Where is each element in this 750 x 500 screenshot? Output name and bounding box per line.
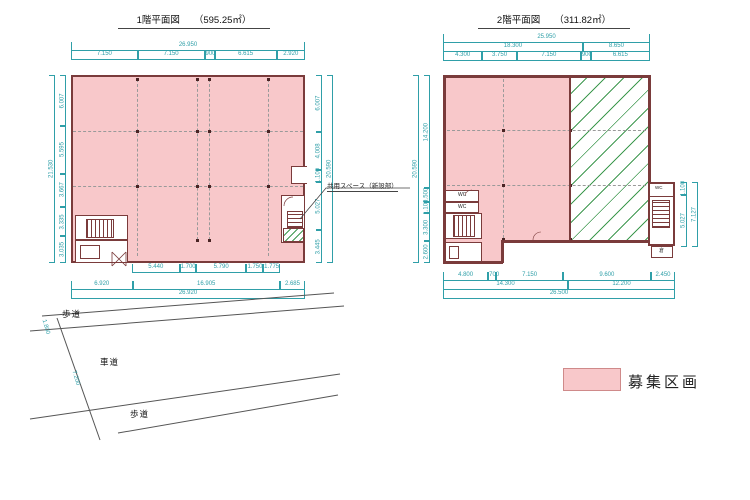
road-label-mid: 車道 — [100, 356, 119, 368]
dim-label: 3.667 — [60, 175, 65, 205]
dim-segment: 6.615 — [215, 51, 277, 60]
dim-segment: 14.300 — [443, 281, 568, 290]
dim-label: 4.008 — [316, 133, 321, 169]
dim-label: 900 — [582, 52, 590, 58]
floor1-wall-notch — [291, 166, 307, 184]
dim-label: 6.007 — [60, 76, 65, 125]
dim-label: 4.300 — [444, 52, 481, 58]
column-marker — [502, 129, 505, 132]
road-label-top: 歩道 — [62, 308, 81, 320]
dim-label: 1.100 — [681, 183, 686, 194]
dim-col-floor2-right-total: 7.127 — [692, 182, 701, 247]
dim-label: 2.685 — [281, 281, 304, 287]
dim-label: 9.600 — [564, 272, 650, 278]
dim-segment: 1.100 — [424, 202, 430, 213]
dim-row-floor1-top: 7.1507.1509006.6152.920 — [71, 51, 305, 60]
dim-segment: 4.008 — [316, 132, 322, 170]
dim-label: 5.595 — [60, 127, 65, 173]
dim-segment: 7.150 — [517, 52, 581, 61]
dim-label: 12.200 — [569, 281, 674, 287]
dim-label: 7.127 — [692, 183, 697, 246]
dim-label: 1.100 — [316, 171, 321, 181]
dim-segment: 1.100 — [316, 170, 322, 182]
dim-segment: 12.200 — [568, 281, 675, 290]
dim-segment: 21.530 — [49, 75, 55, 263]
dim-row-floor1-top-total: 26.950 — [71, 42, 305, 51]
dim-segment: 16.905 — [133, 281, 280, 290]
dim-segment: 7.150 — [71, 51, 138, 60]
floor-plan-drawing: 1階平面図（595.25㎡） 2階平面図（311.82㎡） 26.950 7.1… — [0, 0, 750, 500]
road-line — [118, 395, 338, 433]
site-dim: 1.800 — [41, 319, 51, 335]
dim-segment: 1.750 — [246, 264, 263, 273]
dim-label: 26.920 — [72, 290, 304, 296]
legend-label: 募集区画 — [628, 371, 700, 392]
dim-label: 7.150 — [72, 51, 137, 57]
dim-segment: 3.445 — [316, 230, 322, 263]
dim-label: 26.500 — [444, 290, 674, 296]
dim-segment: 7.150 — [138, 51, 205, 60]
dim-segment: 900 — [205, 51, 215, 60]
floor2-fixture — [449, 246, 459, 259]
dim-label: 1.775 — [264, 264, 279, 270]
floor2-annex-stairs — [652, 200, 670, 228]
site-dim: 7.200 — [71, 370, 81, 386]
floor2-title: 2階平面図（311.82㎡） — [478, 12, 630, 29]
wc-label: WC — [458, 193, 466, 198]
dim-segment: 3.667 — [60, 174, 66, 206]
dim-label: 7.150 — [139, 51, 204, 57]
dim-segment: 3.335 — [60, 207, 66, 236]
dim-label: 1.750 — [247, 264, 262, 270]
dim-row-floor2-top: 4.3003.7507.1509006.615 — [443, 52, 650, 61]
wc-label: WC — [655, 186, 663, 191]
floor1-left-stairs — [86, 219, 114, 238]
grid-line — [447, 185, 646, 186]
dim-row-floor1-bottom: 6.92016.9052.685 — [71, 281, 305, 290]
dim-label: 700 — [489, 272, 495, 278]
floor2-wall-top — [443, 75, 650, 78]
dim-segment: 5.027 — [316, 182, 322, 230]
dim-segment: 7.150 — [496, 272, 562, 281]
dim-col-floor1-right: 6.0074.0081.1005.0273.445 — [316, 75, 325, 263]
dim-segment: 26.500 — [443, 290, 675, 299]
dim-col-floor2-left-total: 20.590 — [413, 75, 422, 263]
dim-label: 18.300 — [444, 43, 582, 49]
dim-row-floor1-bottom-total: 26.920 — [71, 290, 305, 299]
shared-space-label: 共用スペース（新設部） — [327, 180, 398, 192]
dim-col-floor1-left-total: 21.530 — [49, 75, 58, 263]
dim-label: 6.615 — [592, 52, 649, 58]
dim-col-floor1-right-total: 20.590 — [327, 75, 336, 263]
floor2-wall-bottom — [501, 240, 650, 243]
dim-segment: 6.007 — [60, 75, 66, 126]
dim-label: 7.150 — [518, 52, 580, 58]
legend-swatch — [563, 368, 621, 391]
dim-row-floor2-top-total: 25.950 — [443, 34, 650, 43]
dim-segment: 1.775 — [263, 264, 280, 273]
dim-segment: 26.950 — [71, 42, 305, 51]
dim-segment: 4.300 — [443, 52, 482, 61]
dim-segment: 2.685 — [280, 281, 305, 290]
dim-row-floor2-top-mid: 18.3008.650 — [443, 43, 650, 52]
floor1-partition — [75, 239, 128, 241]
grid-line — [447, 130, 646, 131]
dim-segment: 5.440 — [132, 264, 180, 273]
floor2-unavailable-hatch-area — [570, 77, 648, 240]
dim-segment: 25.950 — [443, 34, 650, 43]
wc-label: WC — [458, 205, 466, 210]
dim-segment: 18.300 — [443, 43, 583, 52]
dim-segment: 1.700 — [180, 264, 196, 273]
dim-label: 1.700 — [181, 264, 195, 270]
floor2-area: （311.82㎡） — [554, 15, 611, 26]
dim-segment: 5.790 — [196, 264, 247, 273]
dim-label: 20.590 — [413, 76, 418, 262]
dim-segment: 6.007 — [316, 75, 322, 132]
floor1-title: 1階平面図（595.25㎡） — [118, 12, 270, 29]
dim-label: 5.790 — [197, 264, 246, 270]
floor2-title-text: 2階平面図 — [497, 15, 540, 26]
dim-label: 1.100 — [424, 203, 429, 212]
dim-row-floor2-bottom: 4.8007007.1509.6002.450 — [443, 272, 675, 281]
road-label-bottom: 歩道 — [130, 408, 149, 420]
dim-label: 14.300 — [444, 281, 567, 287]
dim-segment: 3.750 — [482, 52, 517, 61]
dim-label: 14.200 — [424, 76, 429, 187]
dim-col-floor1-left: 6.0075.5953.6673.3353.035 — [60, 75, 69, 263]
dim-segment: 900 — [581, 52, 591, 61]
dim-col-floor2-right: 1.1005.027 — [681, 182, 690, 247]
dim-label: 6.007 — [316, 76, 321, 131]
floor2-wall-step — [501, 240, 504, 263]
dim-segment: 2.600 — [424, 241, 430, 263]
dim-segment: 7.127 — [692, 182, 698, 247]
dim-segment: 6.920 — [71, 281, 133, 290]
dim-label: 3.300 — [424, 214, 429, 240]
dim-segment: 5.027 — [681, 195, 687, 247]
dim-label: 3.335 — [60, 208, 65, 235]
dim-segment: 20.590 — [413, 75, 419, 263]
dim-segment: 9.600 — [563, 272, 651, 281]
dim-segment: 26.920 — [71, 290, 305, 299]
dim-segment: 700 — [488, 272, 496, 281]
dim-label: 7.150 — [497, 272, 561, 278]
dim-row-floor1-bottom-inner: 5.4401.7005.7901.7501.775 — [132, 264, 280, 273]
dim-label: 6.920 — [72, 281, 132, 287]
dim-label: 25.950 — [444, 34, 649, 40]
dim-label: 900 — [206, 51, 214, 57]
dim-segment: 1.100 — [681, 182, 687, 195]
store-label: 倉 — [659, 249, 664, 254]
floor1-area: （595.25㎡） — [194, 15, 252, 26]
dim-row-floor2-bottom-mid: 14.30012.200 — [443, 281, 675, 290]
dim-segment: 3.300 — [424, 213, 430, 241]
dim-col-floor2-left: 14.2001.5001.1003.3002.600 — [424, 75, 433, 263]
dim-segment: 4.800 — [443, 272, 488, 281]
grid-line — [503, 79, 504, 238]
floor1-small-room — [80, 245, 100, 259]
dim-label: 3.750 — [483, 52, 516, 58]
dim-row-floor2-bottom-total: 26.500 — [443, 290, 675, 299]
floor2-partition-hatch-boundary — [569, 77, 571, 240]
dim-label: 8.650 — [584, 43, 649, 49]
dim-label: 21.530 — [49, 76, 54, 262]
dim-label: 2.920 — [278, 51, 304, 57]
dim-label: 5.440 — [133, 264, 179, 270]
dim-segment: 2.920 — [277, 51, 305, 60]
dim-label: 3.035 — [60, 237, 65, 262]
dim-label: 16.905 — [134, 281, 279, 287]
dim-label: 4.800 — [444, 272, 487, 278]
dim-label: 2.450 — [652, 272, 674, 278]
floor2-annex-partition — [648, 196, 675, 197]
dim-segment: 14.200 — [424, 75, 430, 188]
dim-label: 20.590 — [327, 76, 332, 262]
dim-label: 2.600 — [424, 242, 429, 262]
dim-label: 5.027 — [316, 183, 321, 229]
dim-segment: 5.595 — [60, 126, 66, 174]
floor1-right-hatch — [283, 228, 304, 242]
dim-label: 26.950 — [72, 42, 304, 48]
floor2-left-stairs — [453, 215, 475, 237]
column-marker — [502, 184, 505, 187]
dim-segment: 6.615 — [591, 52, 650, 61]
dim-segment: 20.590 — [327, 75, 333, 263]
dim-segment: 2.450 — [651, 272, 675, 281]
floor1-right-stairs — [287, 211, 303, 228]
dim-label: 3.445 — [316, 231, 321, 262]
dim-segment: 3.035 — [60, 236, 66, 263]
floor1-title-text: 1階平面図 — [137, 15, 180, 26]
dim-label: 6.615 — [216, 51, 276, 57]
dim-segment: 8.650 — [583, 43, 650, 52]
dim-label: 5.027 — [681, 196, 686, 246]
